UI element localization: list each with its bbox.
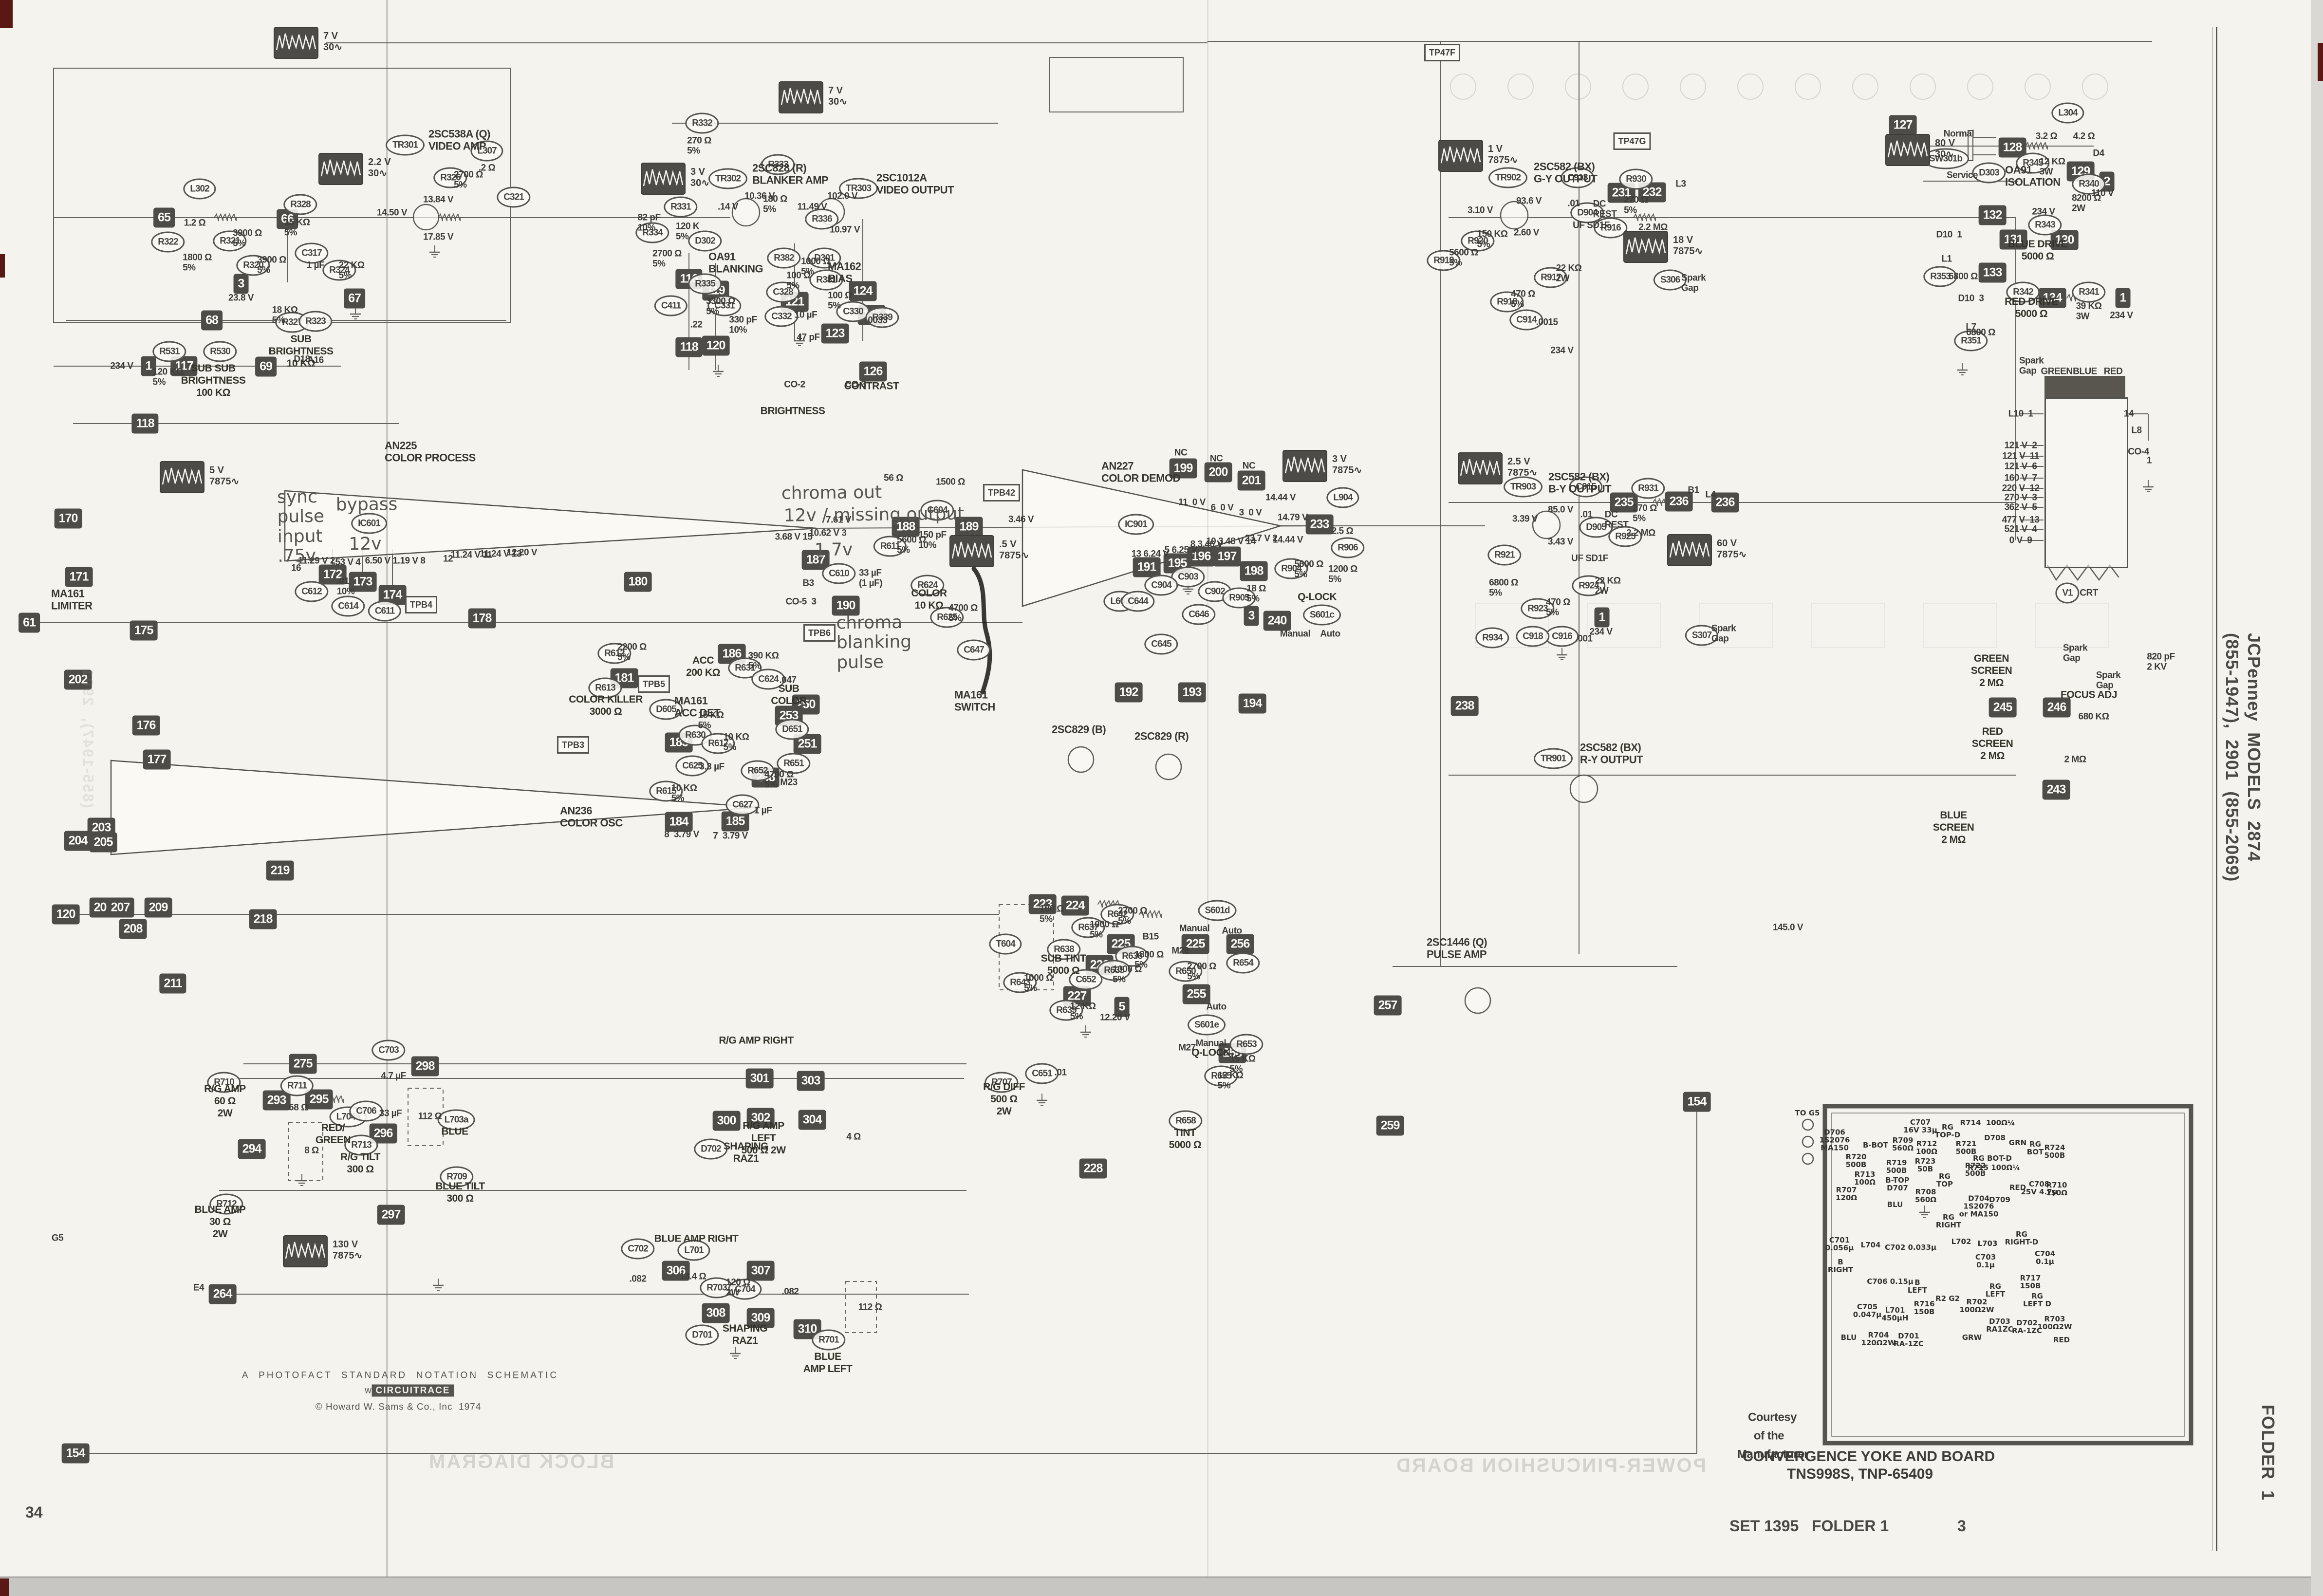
inset-label: R724 500B xyxy=(2044,1144,2065,1159)
value-label: 3.68 V 15 xyxy=(775,532,813,542)
callout-118: 118 xyxy=(131,414,158,434)
inset-label: RG TOP xyxy=(1936,1172,1953,1188)
component-C321: C321 xyxy=(497,187,530,208)
callout-294: 294 xyxy=(238,1139,266,1159)
component-R328: R328 xyxy=(283,194,317,215)
component-R382: R382 xyxy=(767,248,800,269)
value-label: 47 pF xyxy=(797,332,819,342)
callout-120: 120 xyxy=(702,336,730,356)
value-label: 234 V xyxy=(1589,627,1612,637)
value-label: .0033 xyxy=(865,315,887,325)
inset-label: R713 100Ω xyxy=(1854,1170,1876,1186)
inset-label: BLU xyxy=(1841,1334,1857,1341)
value-label: D10 3 xyxy=(1958,293,1984,303)
component-R332: R332 xyxy=(685,113,719,134)
callout-127: 127 xyxy=(1889,115,1917,135)
component-C610: C610 xyxy=(822,563,855,584)
testpoint-TPB4: TPB4 xyxy=(405,596,437,613)
inset-label: R722 500B xyxy=(1965,1162,1986,1177)
callout-257: 257 xyxy=(1374,996,1402,1016)
waveform-trace xyxy=(950,536,993,566)
component-TR902: TR902 xyxy=(1488,167,1527,188)
crt-body xyxy=(2044,397,2128,568)
waveform-label: 7 V 30∿ xyxy=(323,31,342,53)
value-label: 13.84 V xyxy=(423,194,453,204)
inset-courtesy-2: of the xyxy=(1754,1430,1784,1443)
value-label: 33 µF xyxy=(379,1108,402,1118)
component-IC901: IC901 xyxy=(1118,514,1154,535)
inset-label: B LEFT xyxy=(1908,1279,1927,1294)
value-label: 6800 Ω xyxy=(1966,327,1995,337)
crt-pin-row: 270 V 3 xyxy=(2005,492,2037,502)
callout-192: 192 xyxy=(1115,683,1143,703)
value-label: 22 KΩ 5% xyxy=(339,260,365,281)
waveform-thumbnail xyxy=(1283,451,1326,481)
value-label: 12.20 V xyxy=(1100,1012,1130,1022)
inset-label: R712 100Ω xyxy=(1916,1140,1937,1155)
value-label: .01 xyxy=(1055,1067,1067,1077)
stage-label: 2SC828 (R) BLANKER AMP xyxy=(752,162,828,187)
control-label: CONTRAST xyxy=(844,381,899,393)
inset-label: GRW xyxy=(1962,1334,1982,1341)
callout-118: 118 xyxy=(675,337,702,357)
photofact-line1: A PHOTOFACT STANDARD NOTATION SCHEMATIC xyxy=(242,1371,558,1380)
control-label: BLUE DRIVE 5000 Ω xyxy=(2008,239,2067,263)
callout-303: 303 xyxy=(797,1071,825,1091)
control-label: R/G TILT 300 Ω xyxy=(340,1151,380,1176)
value-label: 110 V xyxy=(2091,188,2114,198)
waveform-trace xyxy=(642,164,685,194)
value-label: 2.2 MΩ xyxy=(1626,528,1655,538)
value-label: 470 Ω 5% xyxy=(1546,597,1570,618)
component-TR302: TR302 xyxy=(708,168,747,189)
callout-243: 243 xyxy=(2043,780,2070,800)
inset-subtitle: TNS998S, TNP-65409 xyxy=(1787,1466,1933,1483)
waveform-thumbnail xyxy=(1439,141,1482,171)
inset-label: RED xyxy=(2053,1336,2070,1344)
component-C904: C904 xyxy=(1144,575,1178,596)
control-label: SHAPING RAZ1 xyxy=(723,1323,767,1347)
waveform-trace xyxy=(1886,135,1929,165)
crt-pin-row: L10 1 xyxy=(2008,408,2033,419)
crt-pin-row: 121 V 2 xyxy=(2005,440,2037,450)
inset-label: R714 100Ω¼ xyxy=(1960,1119,2015,1127)
callout-218: 218 xyxy=(249,909,277,929)
waveform-trace xyxy=(275,28,317,58)
value-label: 2200 Ω 5% xyxy=(617,642,647,663)
component-R335: R335 xyxy=(688,274,722,295)
bleed-through-text: (855-1947), 2901 xyxy=(80,667,95,808)
value-label: 100 Ω 5% xyxy=(828,291,852,312)
component-S601c: S601c xyxy=(1303,605,1341,626)
control-label: R/G AMP 60 Ω 2W xyxy=(204,1083,246,1119)
component-R341: R341 xyxy=(2072,282,2105,303)
component-C703: C703 xyxy=(372,1040,405,1061)
inset-label: R716 150B xyxy=(1914,1300,1935,1316)
component-R323: R323 xyxy=(298,311,332,332)
callout-132: 132 xyxy=(1979,205,2007,225)
value-label: 2.2 MΩ xyxy=(1638,222,1668,232)
component-D651: D651 xyxy=(775,719,809,740)
value-label: 1 µF xyxy=(754,805,772,816)
inset-label: RG RIGHT xyxy=(1936,1213,1961,1229)
control-label: R/G DIFF 500 Ω 2W xyxy=(983,1081,1025,1117)
stage-label: OA91 ISOLATION xyxy=(2005,164,2061,189)
callout-207: 207 xyxy=(107,898,134,918)
value-label: 10.97 V xyxy=(830,224,860,235)
control-label: COLOR 10 KΩ xyxy=(911,588,947,612)
waveform-trace xyxy=(1283,451,1326,481)
component-IC601: IC601 xyxy=(351,513,387,534)
value-label: 39 KΩ 3W xyxy=(2076,301,2102,322)
value-label: 3.2 Ω xyxy=(2036,131,2057,141)
stage-label: 2SC829 (R) xyxy=(1134,730,1189,742)
stage-label: MA161 LIMITER xyxy=(51,588,93,612)
stage-label: 2SC1012A VIDEO OUTPUT xyxy=(876,172,954,197)
crt-pin-row: 121 V 6 xyxy=(2005,461,2037,471)
component-C332: C332 xyxy=(764,306,798,327)
component-R930: R930 xyxy=(1619,169,1653,190)
callout-61: 61 xyxy=(19,613,40,633)
stage-label: MA161 SWITCH xyxy=(954,689,995,714)
stage-label: 2SC582 (BX) G-Y OUTPUT xyxy=(1534,161,1597,186)
callout-67: 67 xyxy=(344,289,365,309)
crt-tube-label: CRT xyxy=(2080,588,2098,598)
value-label: Service xyxy=(1947,170,1978,180)
crt-tube-id: V1 xyxy=(2055,583,2079,604)
waveform-thumbnail xyxy=(319,154,362,184)
callout-154: 154 xyxy=(1683,1092,1711,1112)
crt-pin-14: 14 xyxy=(2124,408,2134,419)
component-C647: C647 xyxy=(957,640,990,661)
inset-label: C703 0.1µ xyxy=(1975,1253,1996,1269)
value-label: E4 xyxy=(193,1282,204,1293)
value-label: 100 Ω 5% xyxy=(1040,904,1064,925)
value-label: 1200 Ω 5% xyxy=(1328,564,1357,585)
value-label: 12 KΩ 5% xyxy=(1070,1002,1096,1022)
value-label: 10 3.48 V 14 xyxy=(1206,536,1256,546)
callout-175: 175 xyxy=(130,621,158,641)
value-label: 4.2 Ω xyxy=(2073,131,2095,141)
control-label: SHAPING RAZ1 xyxy=(724,1141,768,1165)
control-label: GREEN SCREEN 2 MΩ xyxy=(1971,653,2012,689)
inset-courtesy-1: Courtesy xyxy=(1748,1411,1797,1425)
value-label: 150 KΩ 5% xyxy=(1477,229,1508,250)
value-label: 820 pF 2 KV xyxy=(2147,652,2174,673)
value-label: UF SD1F xyxy=(1573,220,1610,230)
inset-title: CONVERGENCE YOKE AND BOARD xyxy=(1743,1448,1995,1465)
value-label: 1500 Ω xyxy=(936,477,965,487)
callout-245: 245 xyxy=(1989,698,2017,718)
component-C411: C411 xyxy=(654,296,688,316)
inset-label: C704 0.1µ xyxy=(2035,1250,2055,1265)
scan-artifact xyxy=(0,0,13,28)
handwritten-annotation: 12v xyxy=(349,534,382,554)
inset-label: RG BOT xyxy=(2027,1140,2044,1156)
value-label: 1000 Ω 5% xyxy=(1090,920,1119,941)
inset-label: L702 xyxy=(1951,1238,1971,1245)
page-number-left: 34 xyxy=(25,1504,43,1520)
value-label: 23.8 V xyxy=(228,293,254,303)
value-label: D10 1 xyxy=(1936,229,1962,240)
waveform-thumbnail xyxy=(284,1236,327,1266)
value-label: 10.62 V 3 xyxy=(809,528,847,538)
stage-label: AN225 COLOR PROCESS xyxy=(385,440,476,464)
component-TR301: TR301 xyxy=(386,135,425,156)
component-R931: R931 xyxy=(1631,478,1665,499)
value-label: 1.19 V 8 xyxy=(393,556,426,566)
value-label: 2.60 V xyxy=(1514,227,1539,238)
value-label: .0015 xyxy=(1536,317,1558,327)
control-label: BLUE AMP RIGHT xyxy=(654,1233,739,1245)
callout-178: 178 xyxy=(468,609,496,629)
handwritten-annotation: chroma out xyxy=(781,483,882,503)
value-label: 2700 Ω 5% xyxy=(1187,962,1216,983)
control-label: BLUE xyxy=(441,1126,468,1138)
value-label: 6 0 V xyxy=(1211,502,1234,513)
testpoint-TPB6: TPB6 xyxy=(803,624,836,642)
inset-label: C706 0.15µ xyxy=(1867,1278,1914,1285)
callout-297: 297 xyxy=(377,1205,405,1225)
component-C706: C706 xyxy=(349,1101,383,1122)
stage-label: 2SC829 (B) xyxy=(1052,723,1106,735)
value-label: B15 xyxy=(1142,931,1158,942)
value-label: Spark Gap xyxy=(2019,356,2044,377)
handwritten-annotation: 1.7v xyxy=(815,540,853,560)
inset-label: B RIGHT xyxy=(1828,1258,1853,1274)
stage-label: 2SC582 (BX) R-Y OUTPUT xyxy=(1580,742,1643,766)
component-C918: C918 xyxy=(1516,626,1549,647)
crt-pin-row: 0 V 9 xyxy=(2009,535,2032,545)
inset-label: BLU xyxy=(1887,1201,1903,1208)
value-label: M28 xyxy=(1171,946,1189,956)
stage-label: OA91 BLANKING xyxy=(708,251,763,276)
waveform-label: 60 V 7875∿ xyxy=(1717,538,1747,560)
control-label: RED SCREEN 2 MΩ xyxy=(1972,726,2013,762)
inset-label: D708 xyxy=(1984,1134,2006,1142)
inset-label: R710 150Ω xyxy=(2046,1181,2067,1197)
value-label: 145.0 V xyxy=(1773,922,1803,932)
value-label: 8 3.79 V xyxy=(664,829,699,839)
component-R343: R343 xyxy=(2028,215,2062,236)
handwritten-annotation: 12v / missing output xyxy=(784,504,965,526)
waveform-label: 18 V 7875∿ xyxy=(1673,235,1703,257)
component-C614: C614 xyxy=(331,596,365,617)
value-label: 14.44 V xyxy=(1265,492,1296,502)
value-label: .14 V xyxy=(718,202,738,212)
control-label: COLOR KILLER 3000 Ω xyxy=(569,694,643,718)
value-label: Auto xyxy=(1206,1002,1226,1012)
value-label: 112 Ω xyxy=(858,1302,882,1312)
model-title-vertical: JCPenney MODELS 2874 (855-1947), 2901 (8… xyxy=(2221,633,2265,882)
waveform-thumbnail xyxy=(1886,135,1929,165)
inset-label: R721 500B xyxy=(1956,1140,1977,1155)
value-label: 10 KΩ 5% xyxy=(724,732,749,753)
value-label: 3 0 V xyxy=(1239,507,1262,518)
inset-label: RG TOP-D xyxy=(1935,1123,1960,1139)
value-label: .2 Ω xyxy=(479,163,495,173)
inset-label: R720 500B xyxy=(1846,1153,1867,1169)
value-label: CO-2 xyxy=(784,379,805,390)
value-label: 17.85 V xyxy=(423,232,453,242)
inset-label: L704 xyxy=(1861,1241,1881,1249)
component-R653: R653 xyxy=(1229,1034,1263,1055)
value-label: 2 MΩ xyxy=(2064,754,2086,764)
control-label: FOCUS ADJ xyxy=(2061,689,2117,702)
waveform-trace xyxy=(1459,453,1502,483)
value-label: 234 V xyxy=(1550,345,1573,355)
waveform-trace xyxy=(161,462,204,492)
value-label: 112 Ω xyxy=(418,1111,442,1121)
waveform-label: 2.5 V 7875∿ xyxy=(1507,456,1537,479)
value-label: 3.46 V xyxy=(1008,514,1034,524)
callout-191: 191 xyxy=(1133,557,1161,577)
callout-68: 68 xyxy=(201,311,223,331)
value-label: 270 Ω 5% xyxy=(1624,195,1648,216)
value-label: 11.49 V xyxy=(798,202,827,212)
value-label: 33 µF (1 µF) xyxy=(859,568,882,589)
callout-219: 219 xyxy=(266,861,294,881)
crt-pin-row: 160 V 7 xyxy=(2005,473,2037,483)
control-label: BLUE TILT 300 Ω xyxy=(435,1181,484,1205)
value-label: Auto xyxy=(1222,926,1242,936)
component-C651: C651 xyxy=(1025,1063,1059,1084)
value-label: DC REST xyxy=(1593,199,1617,220)
callout-65: 65 xyxy=(153,208,175,228)
fold-crease xyxy=(1207,0,1208,1596)
value-label: 3900 Ω 5% xyxy=(233,228,262,249)
waveform-label: 3 V 30∿ xyxy=(690,167,709,189)
component-D702: D702 xyxy=(694,1139,727,1160)
callout-204: 204 xyxy=(64,831,92,851)
waveform-thumbnail xyxy=(1459,453,1502,483)
stage-label: MA162 BIAS xyxy=(828,260,861,285)
waveform-label: 3 V 7875∿ xyxy=(1332,454,1362,476)
component-L302: L302 xyxy=(183,179,216,200)
callout-197: 197 xyxy=(1213,547,1241,567)
component-C702: C702 xyxy=(621,1239,654,1260)
component-S601d: S601d xyxy=(1198,900,1237,921)
callout-307: 307 xyxy=(747,1261,775,1281)
component-C644: C644 xyxy=(1121,591,1154,612)
right-scan-band xyxy=(2311,0,2323,1596)
waveform-trace xyxy=(1668,535,1711,565)
value-label: 93.6 V xyxy=(1516,196,1542,206)
value-label: 22 KΩ 2W xyxy=(1556,263,1582,284)
waveform-thumbnail xyxy=(780,82,822,112)
callout-298: 298 xyxy=(411,1057,439,1076)
inset-label: L701 450µH xyxy=(1882,1306,1909,1322)
value-label: 120 Ω 2W xyxy=(726,1278,750,1299)
value-label: 18 KΩ 5% xyxy=(272,305,298,326)
waveform-label: 80 V 30∿ xyxy=(1935,138,1955,160)
waveform-thumbnail xyxy=(275,28,317,58)
value-label: 3900 Ω 5% xyxy=(257,255,286,276)
page-edge-line xyxy=(2212,27,2212,1551)
component-R921: R921 xyxy=(1487,545,1521,566)
callout-205: 205 xyxy=(90,833,117,853)
control-label: SUB COLOR xyxy=(771,683,806,707)
value-label: 11 0 V xyxy=(1178,497,1206,507)
inset-label: GRN xyxy=(2009,1139,2026,1147)
value-label: 3.39 V xyxy=(1512,514,1538,524)
crt-gun-label-blue: BLUE xyxy=(2073,366,2097,376)
waveform-label: 5 V 7875∿ xyxy=(209,465,239,487)
control-label: RED/ GREEN xyxy=(316,1122,351,1147)
value-label: .01 xyxy=(1568,198,1580,208)
testpoint-TPB42: TPB42 xyxy=(983,484,1020,501)
schematic-line-art xyxy=(0,0,2323,1596)
control-label: SUB BRIGHTNESS 10 KΩ xyxy=(269,334,334,370)
control-label: BLUE AMP LEFT xyxy=(803,1351,853,1375)
value-label: .082 xyxy=(782,1286,799,1297)
scan-artifact xyxy=(2318,43,2323,81)
inset-label: C702 0.033µ xyxy=(1885,1243,1936,1251)
callout-1: 1 xyxy=(2116,288,2131,308)
value-label: 3.3 µF xyxy=(699,761,724,772)
callout-171: 171 xyxy=(65,567,93,587)
callout-264: 264 xyxy=(209,1284,237,1304)
crt-pin-row: 521 V 4 xyxy=(2005,524,2037,534)
value-label: .01 xyxy=(1580,509,1593,520)
inset-label: D706 1S2076 MA150 xyxy=(1820,1129,1850,1152)
waveform-label: 130 V 7875∿ xyxy=(333,1239,362,1262)
value-label: L1 xyxy=(1941,254,1951,264)
value-label: 2700 Ω 5% xyxy=(652,249,682,270)
callout-184: 184 xyxy=(665,812,693,832)
callout-211: 211 xyxy=(159,974,186,994)
value-label: 1.2 Ω xyxy=(184,218,205,228)
callout-255: 255 xyxy=(1183,984,1210,1004)
inset-label: R708 560Ω xyxy=(1915,1188,1936,1204)
waveform-label: .5 V 7875∿ xyxy=(999,539,1029,561)
value-label: 10 µF xyxy=(795,310,817,320)
value-label: Spark Gap xyxy=(2063,643,2087,664)
value-label: NC xyxy=(1174,447,1187,458)
testpoint-TPB5: TPB5 xyxy=(638,675,670,693)
value-label: 470 Ω 5% xyxy=(1511,289,1535,310)
callout-176: 176 xyxy=(132,716,160,736)
value-label: 390 KΩ 5% xyxy=(748,651,779,672)
component-TR901: TR901 xyxy=(1534,748,1573,769)
control-label: SUB SUB BRIGHTNESS 100 KΩ xyxy=(181,363,246,399)
inset-label: R2 G2 xyxy=(1935,1295,1960,1302)
component-L304: L304 xyxy=(2051,103,2084,124)
testpoint-TPB3: TPB3 xyxy=(557,736,589,754)
value-label: 4 Ω xyxy=(846,1132,861,1142)
value-label: 3.43 V xyxy=(1548,537,1573,547)
inset-label: D701 RA-1ZC xyxy=(1894,1332,1924,1348)
stage-label: 2SC538A (Q) VIDEO AMP xyxy=(428,128,490,153)
callout-240: 240 xyxy=(1264,611,1291,631)
value-label: 6800 Ω xyxy=(1949,271,1978,281)
component-R654: R654 xyxy=(1226,953,1260,974)
value-label: 100 Ω 5% xyxy=(786,271,811,292)
page-number-right: 3 xyxy=(1957,1518,1966,1534)
callout-126: 126 xyxy=(859,362,887,382)
callout-180: 180 xyxy=(624,572,652,592)
photofact-copyright: © Howard W. Sams & Co., Inc 1974 xyxy=(316,1403,482,1412)
callout-3: 3 xyxy=(1244,606,1259,626)
inset-label: R717 150B xyxy=(2020,1274,2041,1290)
inset-label: B-BOT xyxy=(1863,1141,1888,1149)
value-label: 8 Ω xyxy=(304,1145,319,1155)
component-R906: R906 xyxy=(1331,538,1364,558)
component-T604: T604 xyxy=(989,934,1022,955)
value-label: 10 KΩ 5% xyxy=(671,783,697,804)
inset-label: TO G5 xyxy=(1795,1109,1820,1117)
value-label: NC xyxy=(1243,461,1255,471)
